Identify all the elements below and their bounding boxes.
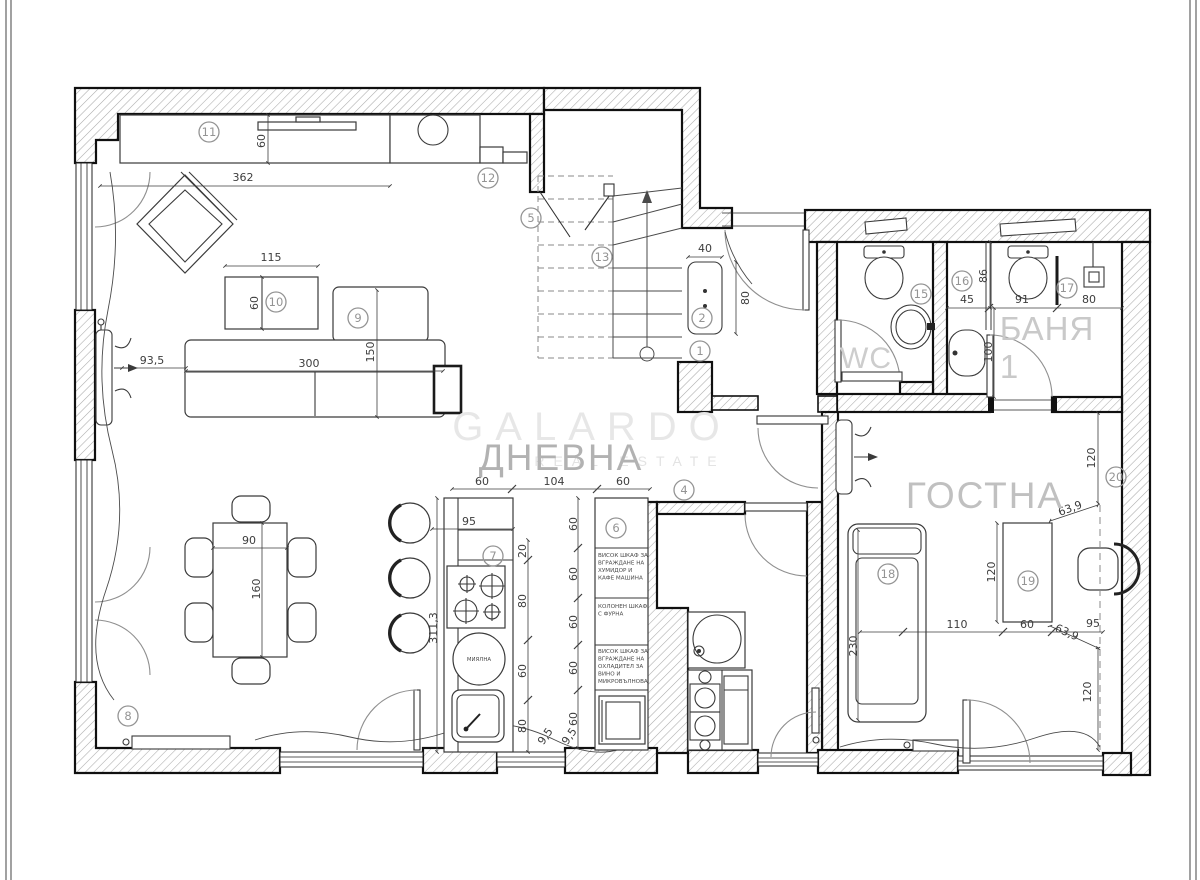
dim-chaise: 150 [364, 342, 377, 363]
svg-text:16: 16 [955, 274, 970, 288]
window-bottom-living-1 [280, 752, 423, 767]
tv-console [120, 115, 527, 163]
door-arc-left-french-1 [95, 547, 150, 602]
wc-toilet [864, 246, 904, 299]
dim-diag-bot: 63,9 [1053, 622, 1081, 644]
dim-guest-win-bot: 120 [1081, 682, 1094, 703]
dim-tv-length: 362 [233, 171, 254, 184]
marker-12: 12 [478, 168, 498, 188]
marker-13: 13 [592, 247, 612, 267]
svg-text:9: 9 [354, 311, 361, 325]
room-label-guest: ГОСТНА [906, 475, 1064, 516]
kitchen-sink [452, 690, 504, 742]
svg-text:13: 13 [595, 250, 610, 264]
dim-guest-win-top: 120 [1085, 448, 1098, 469]
dim-kit-20: 20 [516, 544, 529, 558]
marker-20: 20 [1106, 467, 1126, 487]
dim-coffee-depth: 60 [248, 296, 261, 310]
dim-kit-95a: 9,5 [535, 725, 556, 747]
cabinet-note-wine: ВИСОК ШКАФ ЗА ВГРАЖДАНЕ НА ОХЛАДИТЕЛ ЗА … [598, 649, 650, 685]
shower-head [1084, 242, 1104, 287]
svg-text:19: 19 [1021, 574, 1036, 588]
entry-door-arc [725, 230, 805, 310]
marker-16: 16 [952, 271, 972, 291]
balcony-door-leaf [414, 690, 420, 750]
entry-door-leaf [803, 230, 809, 310]
dim-tv-depth: 60 [255, 134, 268, 148]
svg-text:17: 17 [1060, 281, 1075, 295]
svg-text:2: 2 [698, 311, 705, 325]
utility-closet-door-leaf [812, 688, 819, 733]
window-left-upper [76, 163, 92, 310]
room-label-living: ДНЕВНА [479, 437, 644, 478]
dim-bath-86: 86 [977, 269, 990, 283]
dim-radiator-width: 40 [698, 242, 712, 255]
dim-cab-60-4: 60 [567, 661, 580, 675]
dim-sofa-length: 300 [299, 357, 320, 370]
ac-unit-guest [836, 420, 878, 494]
dim-kit-311: 311,3 [427, 612, 440, 644]
marker-8: 8 [118, 706, 138, 726]
dim-radiator-height: 80 [739, 291, 752, 305]
dishwasher-label: МИЯЛНА [467, 657, 492, 663]
dim-cab-60-5: 60 [567, 712, 580, 726]
utility-door-leaf [745, 503, 807, 511]
bath-basin [949, 330, 985, 376]
dim-cab-60-3: 60 [567, 615, 580, 629]
dim-kit-95: 95 [462, 515, 476, 528]
chaise [333, 287, 428, 342]
staircase [538, 176, 682, 361]
window-bottom-living-2 [497, 752, 565, 767]
window-utility [758, 753, 818, 766]
dim-cab-60-2: 60 [567, 567, 580, 581]
oven [599, 696, 645, 744]
laundry-sink [688, 612, 745, 668]
dim-guest-95: 95 [1086, 617, 1100, 630]
hall-door-arc [758, 428, 818, 488]
svg-text:1: 1 [696, 344, 703, 358]
floorplan-drawing: МИЯЛНА ВИСОК ШКАФ ЗА ВГРАЖДАНЕ НА ХУМИДО… [0, 0, 1200, 880]
dim-cab-60-1: 60 [567, 517, 580, 531]
svg-text:8: 8 [124, 709, 131, 723]
bar-stools [390, 503, 430, 653]
armchair [137, 172, 237, 273]
svg-text:20: 20 [1109, 470, 1124, 484]
utility-room [688, 612, 752, 750]
dim-kit-80a: 80 [516, 594, 529, 608]
wc-basin-mirror [891, 305, 935, 349]
svg-text:7: 7 [489, 549, 496, 563]
dim-kit-95b: 9,5 [559, 725, 580, 747]
dishwasher: МИЯЛНА [453, 633, 505, 685]
kitchen: МИЯЛНА ВИСОК ШКАФ ЗА ВГРАЖДАНЕ НА ХУМИДО… [444, 498, 650, 752]
guest-balcony-door-arc [967, 700, 1030, 763]
dim-desk-length: 120 [985, 562, 998, 583]
washer-dryer-stack [688, 670, 752, 750]
room-label-bath-number: 1 [1000, 348, 1018, 385]
marker-4: 4 [674, 480, 694, 500]
desk [1003, 523, 1052, 622]
svg-text:12: 12 [481, 171, 496, 185]
dim-guest-110: 110 [947, 618, 968, 631]
dim-kit-80b: 80 [516, 719, 529, 733]
bath-toilet [1008, 246, 1048, 299]
dim-kit-60mid: 60 [516, 664, 529, 678]
sofa-bed [848, 524, 926, 722]
floorplan-page: МИЯЛНА ВИСОК ШКАФ ЗА ВГРАЖДАНЕ НА ХУМИДО… [0, 0, 1200, 880]
dim-bath-91: 91 [1015, 293, 1029, 306]
radiator-living [123, 736, 230, 749]
stair-direction-arrow [640, 190, 654, 361]
dim-sofa-offset: 93,5 [140, 354, 165, 367]
svg-text:15: 15 [914, 287, 929, 301]
cooktop [447, 566, 505, 628]
dim-coffee-width: 115 [261, 251, 282, 264]
curtain-left [96, 172, 120, 700]
svg-text:18: 18 [881, 567, 896, 581]
room-label-bath: БАНЯ [1000, 310, 1095, 347]
hall-door-leaf [757, 416, 828, 424]
closet-double-doors [540, 184, 614, 237]
dim-desk-width: 60 [1020, 618, 1034, 631]
dim-table-width: 90 [242, 534, 256, 547]
dim-bath-45: 45 [960, 293, 974, 306]
svg-text:4: 4 [680, 483, 687, 497]
marker-1: 1 [690, 341, 710, 361]
utility-door-arc [745, 514, 807, 576]
dim-bath-80: 80 [1082, 293, 1096, 306]
svg-text:5: 5 [527, 211, 534, 225]
svg-text:6: 6 [612, 521, 619, 535]
dim-sofa-bed: 230 [847, 636, 860, 657]
marker-17: 17 [1057, 278, 1077, 298]
dim-bath-100: 100 [982, 342, 995, 363]
room-label-wc: WC [840, 342, 892, 375]
marker-15: 15 [911, 284, 931, 304]
tv [258, 122, 356, 130]
guest-balcony-door-leaf [963, 700, 970, 763]
dim-table-length: 160 [250, 579, 263, 600]
svg-text:11: 11 [202, 125, 217, 139]
svg-text:10: 10 [269, 295, 284, 309]
window-left-lower [76, 460, 92, 682]
door-arc-left-french-2 [95, 620, 150, 675]
